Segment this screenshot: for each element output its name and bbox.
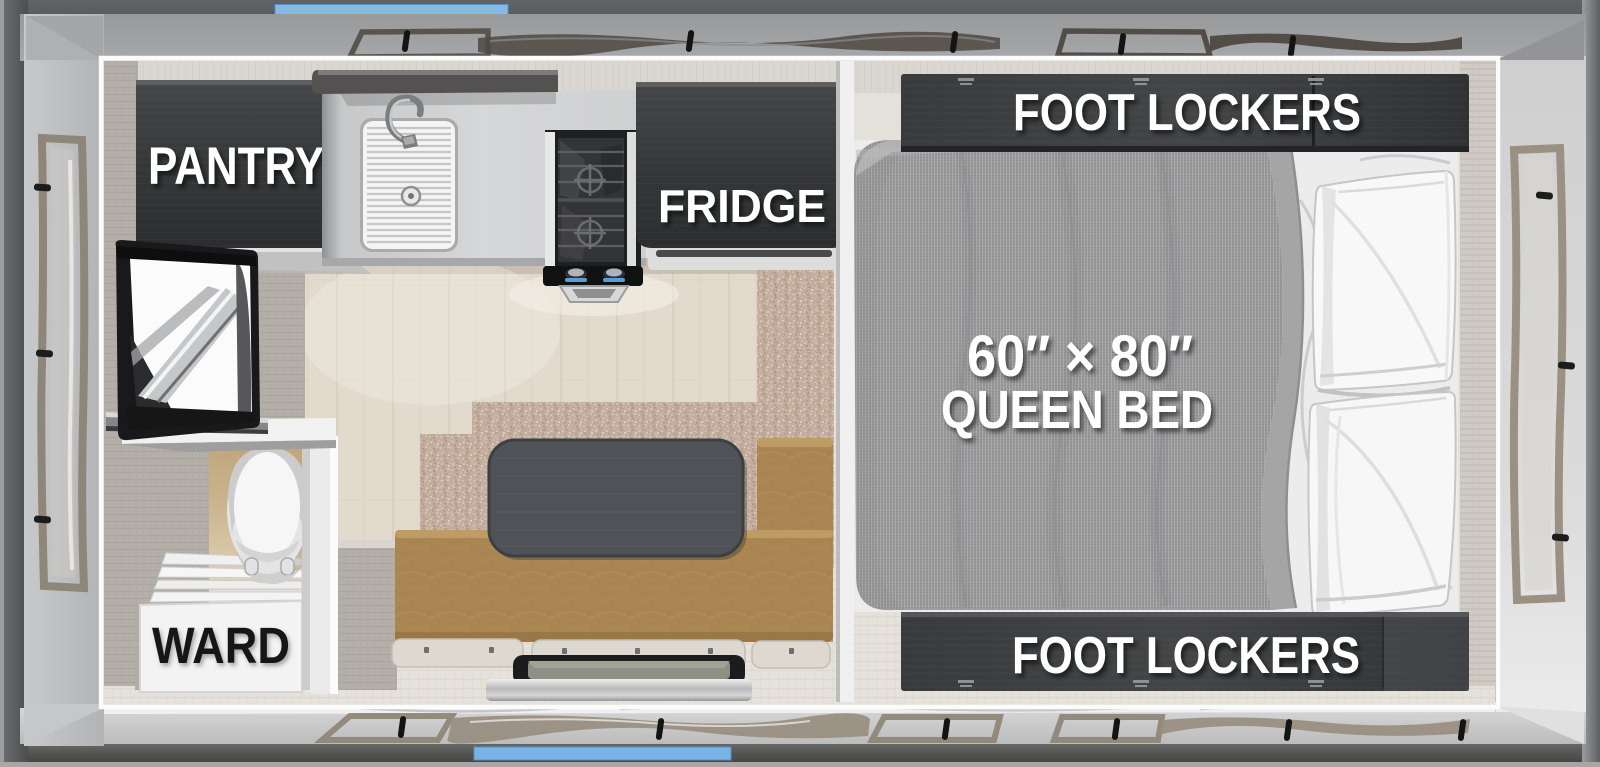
svg-text:WARD: WARD bbox=[152, 617, 290, 674]
svg-text:PANTRY: PANTRY bbox=[148, 137, 324, 196]
svg-text:FOOT LOCKERS: FOOT LOCKERS bbox=[1012, 627, 1360, 685]
svg-text:FRIDGE: FRIDGE bbox=[658, 180, 826, 232]
svg-text:QUEEN BED: QUEEN BED bbox=[941, 380, 1213, 440]
svg-text:FOOT LOCKERS: FOOT LOCKERS bbox=[1013, 84, 1361, 142]
